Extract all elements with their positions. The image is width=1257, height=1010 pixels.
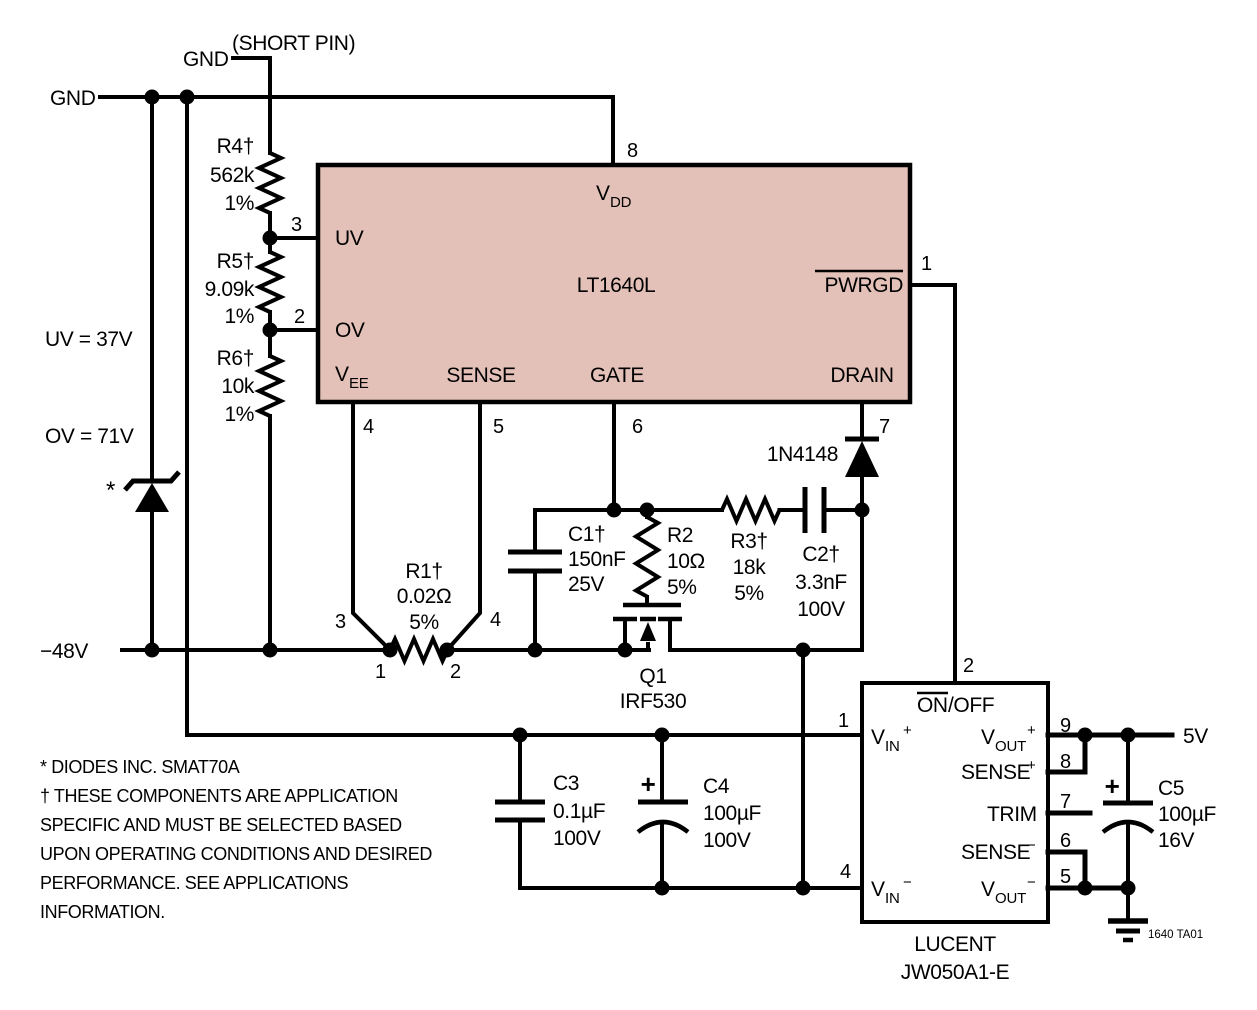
ov-threshold-note: OV = 71V [45, 425, 134, 448]
r1-kelvin4-number: 4 [490, 609, 501, 631]
footnote-line5: PERFORMANCE. SEE APPLICATIONS [40, 873, 349, 893]
r1-terminal1-number: 1 [375, 661, 386, 683]
onoff-pin-off: /OFF [948, 694, 994, 717]
footnote-line1: * DIODES INC. SMAT70A [40, 757, 240, 777]
r5-value: 9.09k [205, 278, 255, 301]
r2-tolerance: 5% [667, 576, 697, 599]
sense-pin-label: SENSE [446, 364, 516, 387]
r2-name: R2 [667, 524, 693, 547]
module-pin1-number: 1 [838, 710, 849, 732]
zener-asterisk: * [106, 477, 115, 504]
c4-value: 100µF [703, 802, 761, 825]
c5-rating: 16V [1158, 829, 1195, 852]
gate-pin-label: GATE [590, 364, 644, 387]
c4-rating: 100V [703, 829, 751, 852]
module-pin5-number: 5 [1060, 866, 1071, 888]
module-part-number: JW050A1-E [901, 961, 1010, 984]
vin-plus-label: V [871, 726, 885, 749]
r5-name: R5† [217, 250, 254, 273]
c2-name: C2† [802, 543, 839, 566]
c5-name: C5 [1158, 777, 1184, 800]
vdd-pin-sub: DD [610, 194, 632, 211]
ic-pin2-number: 2 [294, 306, 305, 328]
ic-part-number: LT1640L [577, 274, 656, 297]
vin-plus-sub: IN [885, 738, 900, 755]
r3-value: 18k [733, 556, 767, 579]
r2-value: 10Ω [667, 550, 705, 573]
uv-threshold-note: UV = 37V [45, 328, 133, 351]
r1-name: R1† [405, 560, 442, 583]
vin-plus-sup: + [903, 722, 912, 739]
r4-tolerance: 1% [224, 192, 254, 215]
d1-part-number: 1N4148 [767, 443, 838, 466]
c3-rating: 100V [553, 827, 601, 850]
footnote-line3: SPECIFIC AND MUST BE SELECTED BASED [40, 815, 402, 835]
c2-value: 3.3nF [795, 571, 847, 594]
ic-pin8-number: 8 [627, 140, 638, 162]
r1-terminal2-number: 2 [450, 661, 461, 683]
vin-minus-label: V [871, 878, 885, 901]
sense-plus-label: SENSE [961, 761, 1031, 784]
r4-value: 562k [210, 164, 255, 187]
vout-minus-label: V [981, 878, 995, 901]
c1-value: 150nF [568, 548, 626, 571]
uv-pin-label: UV [335, 227, 364, 250]
vdd-pin-label: V [596, 182, 610, 205]
vout-plus-sub: OUT [995, 738, 1026, 755]
5v-label: 5V [1183, 725, 1208, 748]
vee-pin-label: V [335, 363, 349, 386]
r1-kelvin3-number: 3 [335, 611, 346, 633]
q1-designator: Q1 [639, 665, 666, 688]
c1-name: C1† [568, 523, 605, 546]
pwrgd-pin-label: PWRGD [825, 274, 904, 297]
sense-plus-sup: + [1027, 757, 1036, 774]
lt1640l-application-schematic: GND GND (SHORT PIN) −48V 5V UV = 37V OV … [0, 0, 1257, 1010]
r3-tolerance: 5% [734, 582, 764, 605]
c4-name: C4 [703, 775, 730, 798]
module-pin7-number: 7 [1060, 791, 1071, 813]
short-pin-note: (SHORT PIN) [232, 32, 355, 55]
ic-pin6-number: 6 [632, 416, 643, 438]
module-pin8-number: 8 [1060, 751, 1071, 773]
module-pin6-number: 6 [1060, 830, 1071, 852]
r6-name: R6† [217, 347, 254, 370]
footnote-line2: † THESE COMPONENTS ARE APPLICATION [40, 786, 398, 806]
c4-polarity-plus: + [641, 769, 656, 799]
module-pin4-number: 4 [840, 861, 851, 883]
footnote-line6: INFORMATION. [40, 902, 165, 922]
c3-value: 0.1µF [553, 800, 605, 823]
vout-plus-sup: + [1027, 722, 1036, 739]
drain-pin-label: DRAIN [830, 364, 893, 387]
vout-minus-sup: − [1027, 874, 1036, 891]
vout-plus-label: V [981, 726, 995, 749]
schematic-page: GND GND (SHORT PIN) −48V 5V UV = 37V OV … [0, 0, 1257, 1010]
gnd-short-pin-label: GND [183, 48, 229, 71]
trim-label: TRIM [987, 803, 1037, 826]
module-pin9-number: 9 [1060, 715, 1071, 737]
c5-value: 100µF [1158, 803, 1216, 826]
ov-pin-label: OV [335, 319, 365, 342]
c1-rating: 25V [568, 573, 605, 596]
onoff-pin-on: ON [917, 694, 948, 717]
vin-minus-sup: − [903, 874, 912, 891]
vout-minus-sub: OUT [995, 890, 1026, 907]
module-pin2-number: 2 [963, 655, 974, 677]
r1-tolerance: 5% [409, 611, 439, 634]
vin-minus-sub: IN [885, 890, 900, 907]
figure-id: 1640 TA01 [1148, 929, 1203, 941]
neg48-label: −48V [40, 640, 88, 663]
r4-name: R4† [217, 135, 254, 158]
r6-value: 10k [221, 375, 255, 398]
c5-polarity-plus: + [1105, 771, 1120, 801]
r3-name: R3† [730, 530, 767, 553]
ic-pin1-number: 1 [921, 253, 932, 275]
vee-pin-sub: EE [349, 375, 369, 392]
c2-rating: 100V [797, 598, 845, 621]
q1-part-number: IRF530 [620, 690, 686, 713]
r5-tolerance: 1% [224, 305, 254, 328]
sense-minus-label: SENSE [961, 841, 1031, 864]
ic-pin7-number: 7 [879, 416, 890, 438]
sense-minus-sup: − [1027, 837, 1036, 854]
r1-value: 0.02Ω [397, 585, 452, 608]
footnote-line4: UPON OPERATING CONDITIONS AND DESIRED [40, 844, 432, 864]
gnd-label: GND [50, 87, 96, 110]
ic-pin5-number: 5 [493, 416, 504, 438]
ic-pin3-number: 3 [291, 214, 302, 236]
ic-pin4-number: 4 [363, 416, 374, 438]
module-vendor: LUCENT [914, 933, 996, 956]
r6-tolerance: 1% [224, 403, 254, 426]
c3-name: C3 [553, 772, 579, 795]
